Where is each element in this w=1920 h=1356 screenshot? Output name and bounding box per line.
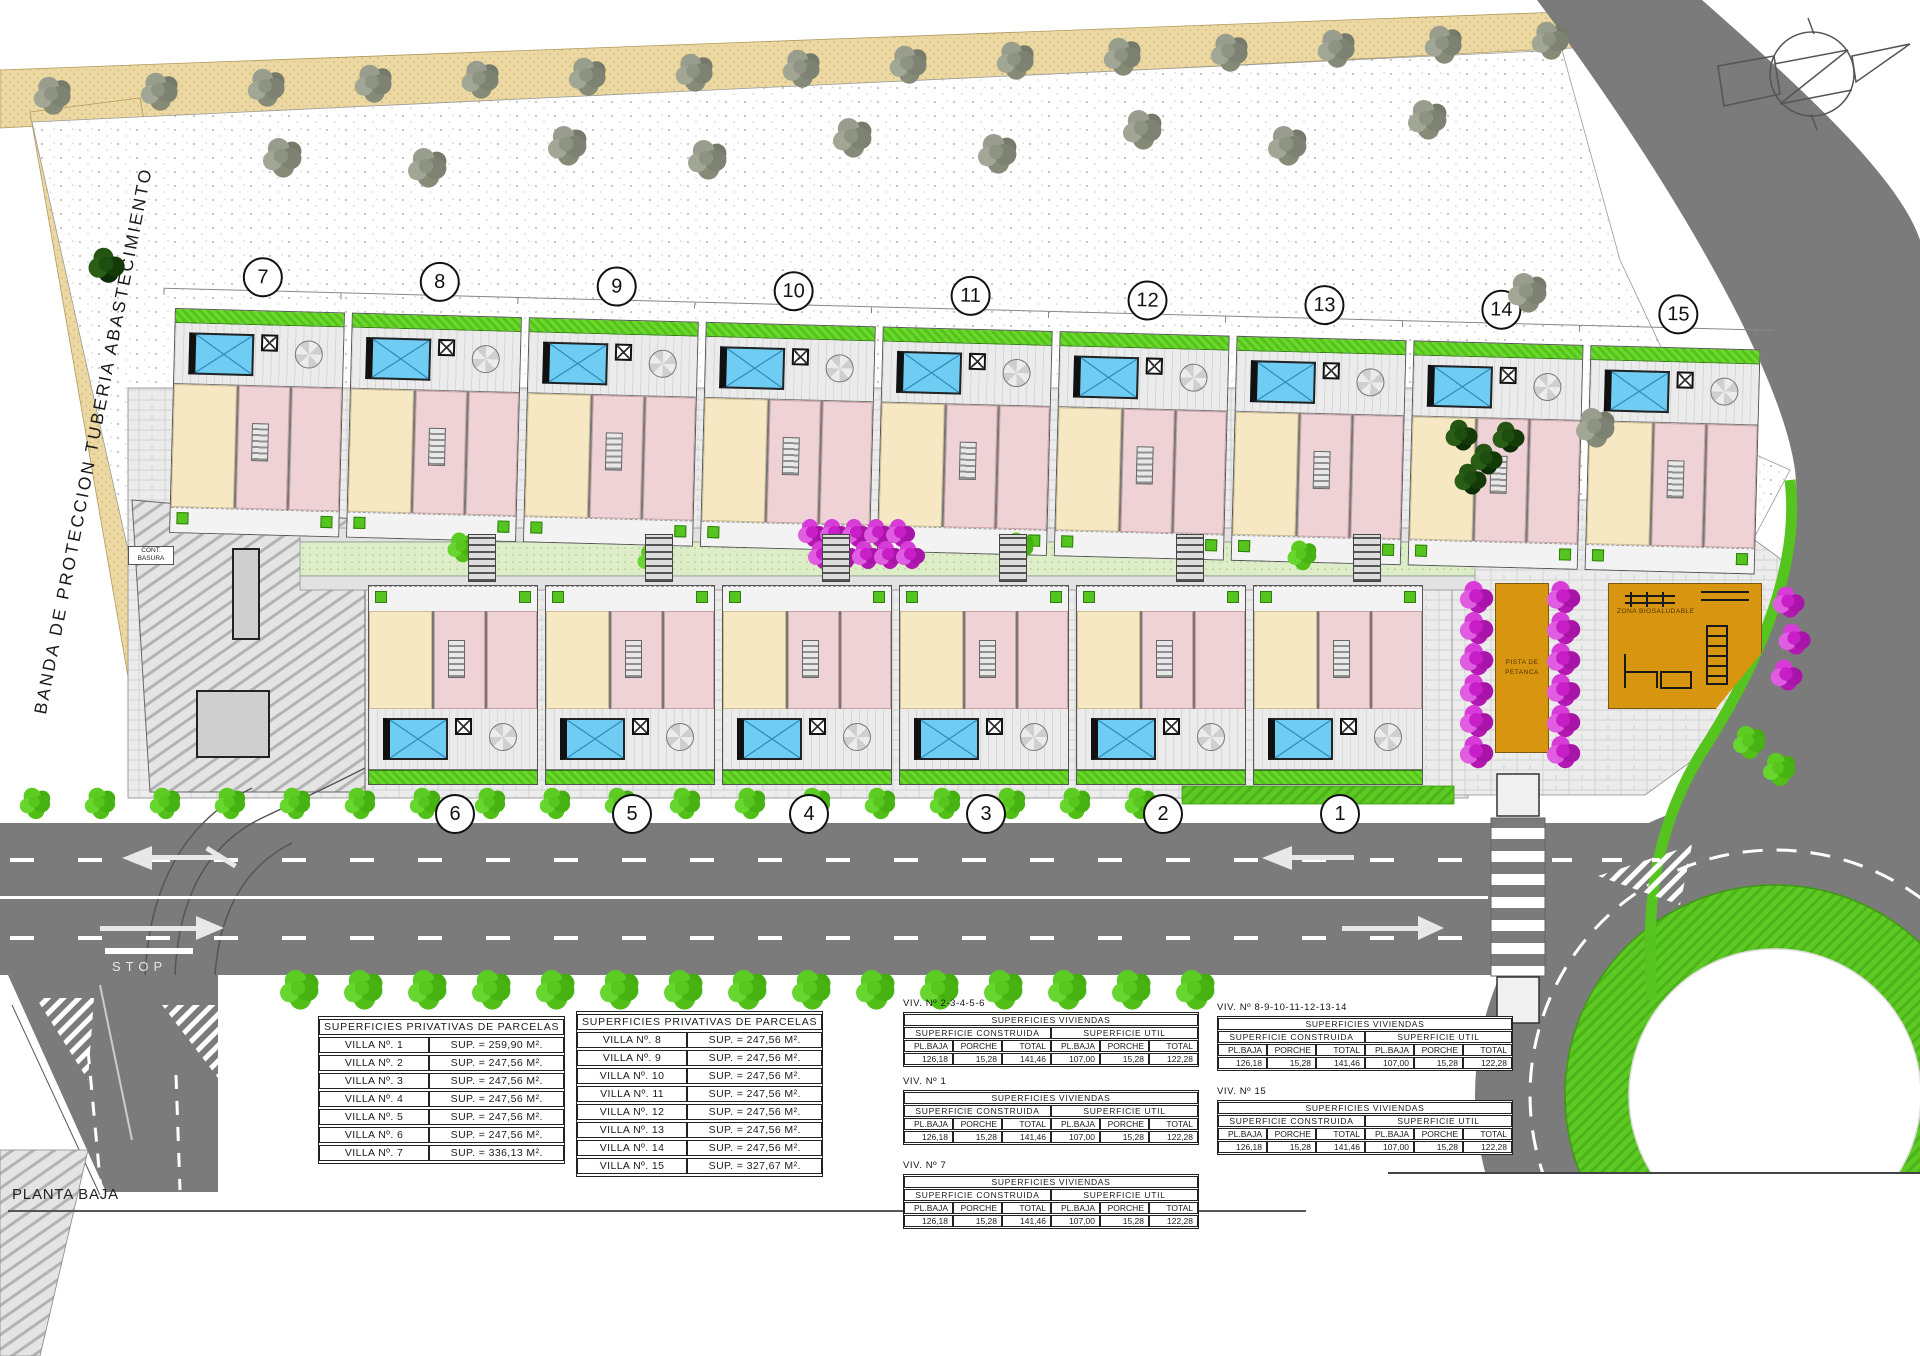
dwelling-group-header: SUPERFICIE CONSTRUIDA	[904, 1027, 1051, 1039]
villa-entry-patio	[723, 586, 891, 611]
villa-pool	[365, 337, 431, 381]
walkway-stairs-icon	[645, 534, 673, 582]
villa-entry-patio	[1254, 586, 1422, 611]
living-room	[1586, 421, 1652, 546]
outdoor-shower-icon	[615, 344, 632, 361]
dwelling-group-header: SUPERFICIE UTIL	[1051, 1027, 1198, 1039]
villa-number: 3	[980, 803, 991, 826]
villa-entry-patio	[369, 586, 537, 611]
tree-icon	[743, 796, 754, 807]
patio-table-icon	[666, 723, 694, 751]
villa-number: 10	[782, 279, 805, 303]
dwelling-column-header: TOTAL	[1149, 1040, 1198, 1052]
flower-tree-icon	[894, 526, 906, 538]
villa-building	[879, 403, 1050, 530]
flower-tree-icon	[1469, 713, 1483, 727]
villa-name-cell: VILLA Nº. 11	[577, 1086, 687, 1102]
villa-building	[525, 393, 696, 520]
dwelling-table-title: SUPERFICIES VIVIENDAS	[1218, 1102, 1512, 1114]
tree-icon	[223, 796, 234, 807]
villa-pool	[560, 718, 625, 760]
dwelling-areas-block: VIV. Nº 15SUPERFICIES VIVIENDASSUPERFICI…	[1217, 1086, 1513, 1155]
tree-icon	[844, 129, 858, 143]
dwelling-area-value: 15,28	[1414, 1141, 1463, 1153]
storage-structure	[196, 690, 270, 758]
dwelling-column-header: TOTAL	[1149, 1202, 1198, 1214]
dwelling-area-value: 107,00	[1051, 1053, 1100, 1065]
patio-table-icon	[648, 349, 677, 378]
parcel-table-title: SUPERFICIES PRIVATIVAS DE PARCELAS	[577, 1014, 822, 1030]
tree-icon	[1296, 549, 1307, 560]
parcel-areas-table-1: SUPERFICIES PRIVATIVAS DE PARCELASVILLA …	[318, 1016, 565, 1164]
dwelling-areas-block: VIV. Nº 2-3-4-5-6SUPERFICIES VIVIENDASSU…	[903, 998, 1199, 1067]
parcel-table-title: SUPERFICIES PRIVATIVAS DE PARCELAS	[319, 1019, 564, 1035]
villa-pool	[914, 718, 979, 760]
villa-building	[1055, 407, 1226, 534]
dwelling-column-header: PL.BAJA	[1365, 1128, 1414, 1140]
dwelling-block-label: VIV. Nº 15	[1217, 1086, 1513, 1097]
dwelling-block-label: VIV. Nº 7	[903, 1160, 1199, 1171]
parcel-area-value: SUP. = 247,56 M².	[429, 1073, 564, 1089]
villa-name-cell: VILLA Nº. 14	[577, 1140, 687, 1156]
staircase-icon	[605, 432, 623, 470]
villa-name-cell: VILLA Nº. 2	[319, 1055, 429, 1071]
tree-icon	[1454, 427, 1467, 440]
dwelling-group-header: SUPERFICIE CONSTRUIDA	[904, 1189, 1051, 1201]
tree-icon	[1519, 284, 1533, 298]
tree-icon	[938, 796, 949, 807]
tree-icon	[93, 796, 104, 807]
parcel-area-value: SUP. = 247,56 M².	[687, 1086, 822, 1102]
flower-tree-icon	[1556, 589, 1570, 603]
tree-icon	[678, 796, 689, 807]
patio-table-icon	[843, 723, 871, 751]
flower-tree-icon	[872, 526, 884, 538]
parcel-area-value: SUP. = 247,56 M².	[429, 1127, 564, 1143]
villa-name-cell: VILLA Nº. 13	[577, 1122, 687, 1138]
villa-entry-patio	[1586, 544, 1755, 573]
dwelling-area-value: 126,18	[904, 1215, 953, 1227]
villa-name-cell: VILLA Nº. 12	[577, 1104, 687, 1120]
dwelling-areas-table: SUPERFICIES VIVIENDASSUPERFICIE CONSTRUI…	[1217, 1100, 1513, 1155]
outdoor-shower-icon	[969, 353, 986, 370]
staircase-icon	[802, 640, 819, 678]
flower-tree-icon	[882, 548, 894, 560]
bush-icon	[995, 981, 1009, 995]
flower-tree-icon	[1556, 682, 1570, 696]
dwelling-area-value: 15,28	[1100, 1053, 1149, 1065]
petanca-court: PISTA DE PETANCA	[1495, 583, 1549, 753]
tree-icon	[1479, 451, 1492, 464]
stop-marking: STOP	[112, 959, 167, 974]
outdoor-shower-icon	[809, 718, 826, 735]
table-row: VILLA Nº. 14SUP. = 247,56 M².	[577, 1140, 822, 1156]
parcel-area-value: SUP. = 247,56 M².	[687, 1050, 822, 1066]
table-row: VILLA Nº. 11SUP. = 247,56 M².	[577, 1086, 822, 1102]
dwelling-group-header: SUPERFICIE CONSTRUIDA	[904, 1105, 1051, 1117]
villa-pool-terrace	[1077, 709, 1245, 770]
villa-garden-strip	[546, 770, 714, 784]
bedroom	[994, 406, 1050, 530]
flower-tree-icon	[1469, 682, 1483, 696]
dwelling-area-value: 126,18	[1218, 1057, 1267, 1069]
patio-table-icon	[1374, 723, 1402, 751]
living-room	[879, 403, 945, 528]
bush-icon	[547, 981, 561, 995]
walkway-stairs-icon	[468, 534, 496, 582]
villa-pool-terrace	[351, 328, 521, 393]
villa-entry-patio	[1077, 586, 1245, 611]
villa-plot-6: 6	[368, 585, 538, 785]
villa-pool	[1250, 360, 1316, 404]
staircase-icon	[782, 437, 800, 475]
dwelling-column-header: PORCHE	[953, 1040, 1002, 1052]
villa-pool-terrace	[546, 709, 714, 770]
bush-icon	[1187, 981, 1201, 995]
dwelling-column-header: PORCHE	[1267, 1128, 1316, 1140]
parcel-area-value: SUP. = 247,56 M².	[687, 1104, 822, 1120]
bedroom	[1370, 611, 1422, 709]
patio-table-icon	[1020, 723, 1048, 751]
bush-icon	[611, 981, 625, 995]
dwelling-area-value: 141,46	[1316, 1057, 1365, 1069]
dwelling-column-header: PL.BAJA	[1051, 1202, 1100, 1214]
villa-pool-terrace	[1590, 360, 1760, 425]
tree-icon	[1221, 44, 1235, 58]
villa-building	[1409, 416, 1580, 543]
dwelling-column-header: PL.BAJA	[904, 1118, 953, 1130]
villa-number-badge: 6	[435, 794, 475, 834]
outdoor-shower-icon	[1676, 371, 1693, 388]
walkway-stairs-icon	[999, 534, 1027, 582]
villa-entry-patio	[546, 586, 714, 611]
villa-plot-2: 2	[1076, 585, 1246, 785]
dwelling-column-header: TOTAL	[1463, 1044, 1512, 1056]
villa-building	[723, 611, 891, 709]
dwelling-area-value: 107,00	[1365, 1057, 1414, 1069]
villa-pool-terrace	[882, 342, 1052, 407]
patio-table-icon	[825, 354, 854, 383]
dwelling-column-header: TOTAL	[1316, 1128, 1365, 1140]
petanca-label: PETANCA	[1505, 668, 1539, 678]
living-room	[702, 398, 768, 523]
villa-number-badge: 5	[612, 794, 652, 834]
outdoor-shower-icon	[438, 339, 455, 356]
tree-icon	[873, 796, 884, 807]
dwelling-group-header: SUPERFICIE UTIL	[1365, 1115, 1512, 1127]
villa-name-cell: VILLA Nº. 7	[319, 1145, 429, 1161]
villa-name-cell: VILLA Nº. 1	[319, 1037, 429, 1053]
dwelling-column-header: TOTAL	[1002, 1040, 1051, 1052]
bush-icon	[355, 981, 369, 995]
villa-garden-strip	[900, 770, 1068, 784]
tree-icon	[483, 796, 494, 807]
villa-pool	[1268, 718, 1333, 760]
villa-building	[171, 384, 342, 511]
villa-plot-8: 8	[346, 313, 522, 542]
villa-number: 7	[257, 266, 269, 289]
bush-icon	[1123, 981, 1137, 995]
bush-icon	[419, 981, 433, 995]
flower-tree-icon	[1556, 620, 1570, 634]
parcel-area-value: SUP. = 336,13 M².	[429, 1145, 564, 1161]
dwelling-area-value: 126,18	[904, 1131, 953, 1143]
dwelling-area-value: 15,28	[1267, 1057, 1316, 1069]
villa-plot-1: 1	[1253, 585, 1423, 785]
tree-icon	[1133, 796, 1144, 807]
patio-table-icon	[489, 723, 517, 751]
outdoor-shower-icon	[632, 718, 649, 735]
bedroom	[286, 387, 342, 511]
dwelling-area-value: 126,18	[1218, 1141, 1267, 1153]
villa-entry-patio	[170, 507, 339, 536]
bush-icon	[291, 981, 305, 995]
dwelling-area-value: 122,28	[1463, 1141, 1512, 1153]
dwelling-column-header: PL.BAJA	[1218, 1044, 1267, 1056]
bedroom	[662, 611, 714, 709]
bush-icon	[803, 981, 817, 995]
villa-name-cell: VILLA Nº. 3	[319, 1073, 429, 1089]
tree-icon	[353, 796, 364, 807]
villa-building	[900, 611, 1068, 709]
dwelling-areas-group-right: VIV. Nº 8-9-10-11-12-13-14SUPERFICIES VI…	[1217, 1002, 1513, 1164]
villa-plot-9: 9	[523, 317, 699, 546]
dwelling-table-title: SUPERFICIES VIVIENDAS	[1218, 1018, 1512, 1030]
bedroom	[817, 401, 873, 525]
dwelling-column-header: PL.BAJA	[1051, 1040, 1100, 1052]
villa-number: 5	[626, 803, 637, 826]
villa-number-badge: 1	[1320, 794, 1360, 834]
tree-icon	[1279, 137, 1293, 151]
living-room	[723, 611, 786, 709]
villa-number: 15	[1667, 303, 1690, 327]
flower-tree-icon	[1556, 744, 1570, 758]
tree-icon	[559, 137, 573, 151]
dwelling-column-header: PORCHE	[1100, 1202, 1149, 1214]
outdoor-shower-icon	[1146, 357, 1163, 374]
tree-icon	[1463, 471, 1476, 484]
living-room	[348, 389, 414, 514]
villa-pool-terrace	[723, 709, 891, 770]
villa-number: 11	[960, 284, 981, 308]
patio-table-icon	[1179, 363, 1208, 392]
dwelling-group-header: SUPERFICIE CONSTRUIDA	[1218, 1031, 1365, 1043]
tree-icon	[686, 64, 700, 78]
villa-garden-strip	[1254, 770, 1422, 784]
table-row: VILLA Nº. 6SUP. = 247,56 M².	[319, 1127, 564, 1143]
villa-pool-terrace	[1254, 709, 1422, 770]
patio-table-icon	[1710, 377, 1739, 406]
table-row: VILLA Nº. 1SUP. = 259,90 M².	[319, 1037, 564, 1053]
bedroom	[1702, 424, 1758, 548]
villa-plot-5: 5	[545, 585, 715, 785]
tree-icon	[419, 159, 433, 173]
tree-icon	[158, 796, 169, 807]
outdoor-shower-icon	[1499, 367, 1516, 384]
dwelling-column-header: PORCHE	[953, 1202, 1002, 1214]
staircase-icon	[448, 640, 465, 678]
living-room	[1254, 611, 1317, 709]
tree-icon	[1003, 796, 1014, 807]
villa-pool	[1427, 365, 1493, 409]
villa-building	[348, 389, 519, 516]
bedroom	[640, 396, 696, 520]
bedroom	[1193, 611, 1245, 709]
walkway-stairs-icon	[1353, 534, 1381, 582]
dwelling-column-header: PL.BAJA	[1218, 1128, 1267, 1140]
parcel-area-value: SUP. = 247,56 M².	[687, 1068, 822, 1084]
table-row: VILLA Nº. 2SUP. = 247,56 M².	[319, 1055, 564, 1071]
parcel-area-value: SUP. = 259,90 M².	[429, 1037, 564, 1053]
dwelling-column-header: TOTAL	[1149, 1118, 1198, 1130]
dwelling-column-header: PL.BAJA	[904, 1040, 953, 1052]
villa-number: 13	[1313, 293, 1336, 317]
waste-container-label: CONT. BASURA	[128, 546, 174, 565]
villa-plot-13: 13	[1231, 336, 1407, 565]
villa-plot-10: 10	[700, 322, 876, 551]
dwelling-area-value: 15,28	[953, 1215, 1002, 1227]
table-row: VILLA Nº. 4SUP. = 247,56 M².	[319, 1091, 564, 1107]
walkway-stairs-icon	[1176, 534, 1204, 582]
parcel-area-value: SUP. = 247,56 M².	[429, 1109, 564, 1125]
villa-name-cell: VILLA Nº. 15	[577, 1158, 687, 1174]
dwelling-areas-block: VIV. Nº 1SUPERFICIES VIVIENDASSUPERFICIE…	[903, 1076, 1199, 1145]
dwelling-group-header: SUPERFICIE CONSTRUIDA	[1218, 1115, 1365, 1127]
tree-icon	[1114, 48, 1128, 62]
flower-tree-icon	[904, 548, 916, 560]
villa-plot-4: 4	[722, 585, 892, 785]
parcel-area-value: SUP. = 247,56 M².	[687, 1122, 822, 1138]
dwelling-block-label: VIV. Nº 8-9-10-11-12-13-14	[1217, 1002, 1513, 1013]
dwelling-area-value: 122,28	[1149, 1131, 1198, 1143]
parcel-area-value: SUP. = 247,56 M².	[429, 1091, 564, 1107]
villa-pool	[188, 332, 254, 376]
parcel-area-value: SUP. = 247,56 M².	[429, 1055, 564, 1071]
flower-tree-icon	[806, 526, 818, 538]
tree-icon	[699, 151, 713, 165]
dwelling-area-value: 122,28	[1463, 1057, 1512, 1069]
villa-entry-patio	[1409, 539, 1578, 568]
villa-plot-14: 14	[1408, 340, 1584, 569]
flower-tree-icon	[1469, 744, 1483, 758]
villa-entry-patio	[900, 586, 1068, 611]
dwelling-area-value: 15,28	[1100, 1131, 1149, 1143]
tree-icon	[989, 145, 1003, 159]
villa-building	[1232, 412, 1403, 539]
villa-pool	[719, 346, 785, 390]
tree-icon	[456, 541, 467, 552]
dwelling-area-value: 107,00	[1051, 1215, 1100, 1227]
dwelling-column-header: TOTAL	[1316, 1044, 1365, 1056]
dwelling-group-header: SUPERFICIE UTIL	[1051, 1189, 1198, 1201]
villa-pool	[1604, 369, 1670, 413]
tree-icon	[1419, 111, 1433, 125]
plan-title: PLANTA BAJA	[12, 1186, 119, 1203]
villa-name-cell: VILLA Nº. 4	[319, 1091, 429, 1107]
tree-icon	[548, 796, 559, 807]
flower-tree-icon	[850, 526, 862, 538]
villa-number: 4	[803, 803, 814, 826]
dwelling-group-header: SUPERFICIE UTIL	[1365, 1031, 1512, 1043]
dwelling-column-header: PL.BAJA	[904, 1202, 953, 1214]
table-row: VILLA Nº. 7SUP. = 336,13 M².	[319, 1145, 564, 1161]
dwelling-area-value: 107,00	[1051, 1131, 1100, 1143]
villa-pool-terrace	[528, 332, 698, 397]
dwelling-table-title: SUPERFICIES VIVIENDAS	[904, 1176, 1198, 1188]
flower-tree-icon	[1469, 589, 1483, 603]
villa-pool	[896, 351, 962, 395]
table-row: VILLA Nº. 5SUP. = 247,56 M².	[319, 1109, 564, 1125]
villa-plot-7: 7	[169, 308, 345, 537]
staircase-icon	[1313, 451, 1331, 489]
villa-plot-12: 12	[1054, 331, 1230, 560]
staircase-icon	[959, 441, 977, 479]
villa-pool	[1091, 718, 1156, 760]
outdoor-shower-icon	[261, 334, 278, 351]
staircase-icon	[979, 640, 996, 678]
dwelling-area-value: 126,18	[904, 1053, 953, 1065]
tree-icon	[28, 796, 39, 807]
flower-tree-icon	[1556, 651, 1570, 665]
dwelling-column-header: TOTAL	[1002, 1202, 1051, 1214]
villa-garden-strip	[369, 770, 537, 784]
dwelling-areas-group-left: VIV. Nº 2-3-4-5-6SUPERFICIES VIVIENDASSU…	[903, 998, 1199, 1238]
staircase-icon	[428, 428, 446, 466]
dwelling-area-value: 15,28	[1267, 1141, 1316, 1153]
patio-table-icon	[471, 345, 500, 374]
villa-garden-strip	[1077, 770, 1245, 784]
tree-icon	[274, 149, 288, 163]
bush-icon	[1772, 762, 1784, 774]
dwelling-column-header: PL.BAJA	[1365, 1044, 1414, 1056]
bedroom	[463, 392, 519, 516]
villa-number-badge: 4	[789, 794, 829, 834]
utility-structure	[232, 548, 260, 640]
table-row: VILLA Nº. 13SUP. = 247,56 M².	[577, 1122, 822, 1138]
villa-number: 1	[1334, 803, 1345, 826]
dwelling-column-header: PORCHE	[1100, 1040, 1149, 1052]
dwelling-column-header: PORCHE	[1414, 1044, 1463, 1056]
parcel-areas-table-2: SUPERFICIES PRIVATIVAS DE PARCELASVILLA …	[576, 1011, 823, 1177]
dwelling-areas-table: SUPERFICIES VIVIENDASSUPERFICIE CONSTRUI…	[903, 1090, 1199, 1145]
waste-label-line: CONT.	[129, 547, 173, 555]
dwelling-area-value: 141,46	[1002, 1131, 1051, 1143]
dwelling-areas-table: SUPERFICIES VIVIENDASSUPERFICIE CONSTRUI…	[1217, 1016, 1513, 1071]
patio-table-icon	[1356, 368, 1385, 397]
living-room	[900, 611, 963, 709]
staircase-icon	[1156, 640, 1173, 678]
tree-icon	[1435, 36, 1449, 50]
staircase-icon	[1136, 446, 1154, 484]
table-row: VILLA Nº. 3SUP. = 247,56 M².	[319, 1073, 564, 1089]
dwelling-areas-block: VIV. Nº 7SUPERFICIES VIVIENDASSUPERFICIE…	[903, 1160, 1199, 1229]
living-room	[171, 384, 237, 509]
table-row: VILLA Nº. 10SUP. = 247,56 M².	[577, 1068, 822, 1084]
tree-icon	[1134, 121, 1148, 135]
tree-icon	[1542, 32, 1556, 46]
tree-icon	[99, 257, 114, 272]
table-row: VILLA Nº. 15SUP. = 327,67 M².	[577, 1158, 822, 1174]
outdoor-shower-icon	[792, 348, 809, 365]
dwelling-group-header: SUPERFICIE UTIL	[1051, 1105, 1198, 1117]
outdoor-shower-icon	[986, 718, 1003, 735]
villa-building	[1254, 611, 1422, 709]
living-room	[1055, 407, 1121, 532]
dwelling-block-label: VIV. Nº 2-3-4-5-6	[903, 998, 1199, 1009]
dwelling-column-header: PORCHE	[1414, 1128, 1463, 1140]
dwelling-areas-table: SUPERFICIES VIVIENDASSUPERFICIE CONSTRUI…	[903, 1012, 1199, 1067]
villa-name-cell: VILLA Nº. 5	[319, 1109, 429, 1125]
